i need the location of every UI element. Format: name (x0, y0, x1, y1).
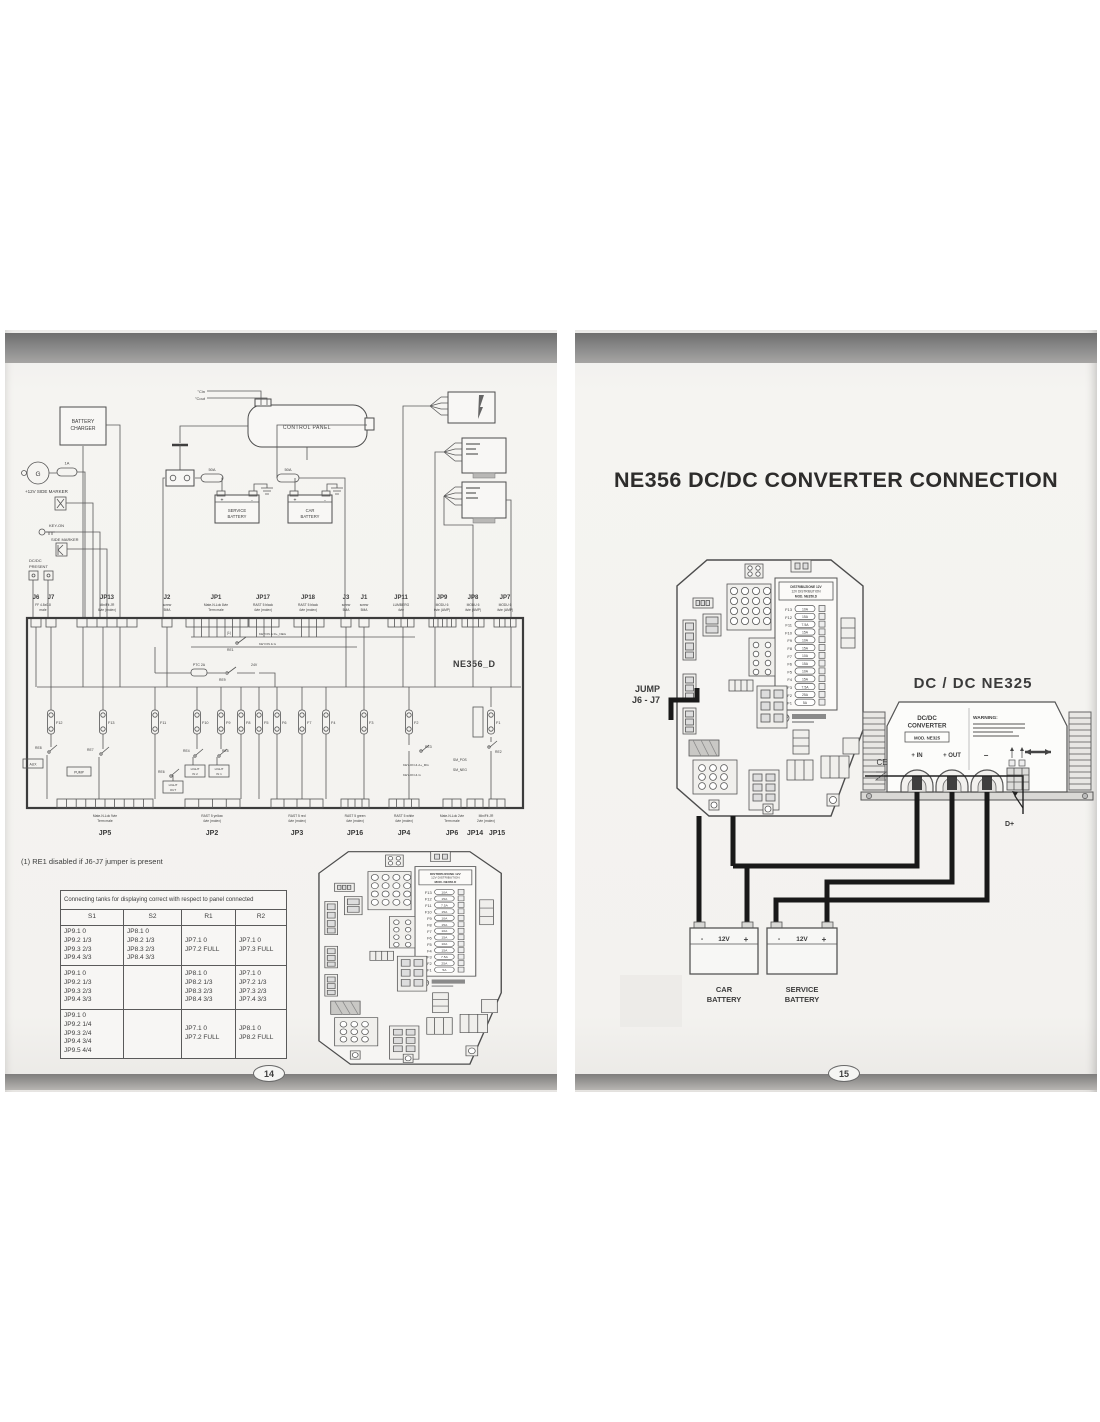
desc-jp13b: 6vie (molex) (98, 608, 116, 612)
sensor-module-a (448, 392, 495, 423)
service-battery-plus: + (822, 935, 827, 944)
cell-r3-s1: JP9.1 0 JP9.2 1/4 JP9.3 2/4 JP9.4 3/4 JP… (61, 1010, 124, 1059)
converter-name2: CONVERTER (908, 723, 947, 730)
light-in1-label: LIGHT (215, 767, 224, 771)
ptc-fuse (191, 669, 207, 676)
cell-r2-s1: JP9.1 0 JP9.2 1/3 JP9.3 2/3 JP9.4 3/3 (61, 966, 124, 1010)
re4-label: RE4 (183, 749, 190, 753)
re7-label: RE7 (87, 748, 94, 752)
desc-jp1: Mate-N-Lok 8vie (204, 603, 228, 607)
fuse-1a: 1A (57, 461, 77, 477)
service-battery-name: SERVICE (786, 985, 819, 994)
light-in2-label2: IN 2 (192, 772, 198, 776)
main-fuse (473, 707, 483, 737)
light-in2-label: LIGHT (191, 767, 200, 771)
fuse-50a-service: 50A (201, 467, 223, 482)
desc-jp13: MiniFit JR (100, 603, 115, 607)
desc-jp7: MODU 6 (499, 603, 512, 607)
jump-label2: J6 - J7 (632, 695, 660, 705)
desc-jp11b: 4vie (398, 608, 404, 612)
desc-jp3b: 4vie (molex) (288, 819, 306, 823)
car-battery-plus: + (294, 498, 297, 504)
fuse-f9: F9 (226, 721, 230, 725)
desc-jp14-15: MiniFit JR (479, 814, 494, 818)
page-14: °Cin °Cout CONTROL PANEL BATTERY CHARGER… (5, 330, 557, 1092)
connector-strips-bottom (57, 799, 505, 808)
desc-jp1b: Term male (208, 608, 224, 612)
dcdc-converter-unit: DC/DC CONVERTER MOD. NE325 WARNING: CE +… (861, 702, 1093, 800)
page-number-14-text: 14 (264, 1069, 274, 1079)
desc-jp6: Mate-N-Lok 2vie (440, 814, 464, 818)
fuse-f11: F11 (160, 721, 166, 725)
car-battery-name: CAR (716, 985, 733, 994)
sm-pos-label: SM_POS (453, 758, 468, 762)
car-battery-label2: BATTERY (301, 514, 320, 519)
ground-symbols (261, 488, 343, 494)
connector-jp6: JP6 (446, 830, 459, 837)
desc-jp9: MODU 6 (436, 603, 449, 607)
desc-jp8b: 4vie (AMP) (465, 608, 481, 612)
board-ne356d: NE356_D (1) RE1 KEYON & D+_NEG KEYON & G… (23, 618, 523, 808)
board-relays: RE8 AUX RE7 PUMP RE6 LIGHT OUT RE4 LIGHT (23, 741, 502, 793)
desc-jp4b: 4vie (molex) (395, 819, 413, 823)
wiring-diagram-ne356: °Cin °Cout CONTROL PANEL BATTERY CHARGER… (5, 385, 557, 865)
converter-name: DC/DC (917, 715, 937, 722)
desc-jp6b: Term male (444, 819, 460, 823)
v24-label: 24V (251, 663, 258, 667)
dplus-label: D+ (1005, 821, 1014, 828)
fuse-50a-car: 50A (277, 467, 299, 482)
ce-mark: CE (876, 758, 887, 767)
cell-r1-s2: JP8.1 0 JP8.2 1/3 JP8.3 2/3 JP8.4 3/3 (124, 926, 182, 966)
desc-j1: screw (360, 603, 369, 607)
col-r1: R1 (182, 910, 236, 926)
battery-switch (166, 445, 194, 486)
light-in1-label2: IN 1 (216, 772, 222, 776)
cell-r3-r2: JP8.1 0 JP8.2 FULL (236, 1010, 287, 1059)
pcb-layout-large (677, 560, 863, 816)
connector-jp7: JP7 (500, 595, 511, 601)
cell-r1-r2: JP7.1 0 JP7.3 FULL (236, 926, 287, 966)
cell-r2-s2 (124, 966, 182, 1010)
connector-strips-top (31, 618, 516, 627)
fuse-labels: F12 F13 F11 F10 F9 F8 F5 F6 F7 F4 F3 F2 … (56, 721, 500, 725)
connector-labels-bottom: JP5 JP2 JP3 JP16 JP4 JP6 JP14 JP15 (99, 830, 506, 837)
desc-j1b: 5MA (361, 608, 369, 612)
terminal-minus-label: − (984, 751, 989, 760)
desc-jp2: RAST 5 yellow (201, 814, 223, 818)
cell-r2-r1: JP8.1 0 JP8.2 1/3 JP8.3 2/3 JP8.4 3/3 (182, 966, 236, 1010)
keyon-g-label: KEYON & G (259, 642, 277, 646)
label-12v-side-marker: +12V SIDE MARKER (25, 489, 69, 494)
col-r2: R2 (236, 910, 287, 926)
fuse-f5: F5 (264, 721, 268, 725)
page-15: NE356 DC/DC CONVERTER CONNECTION JUMP J6… (575, 330, 1097, 1092)
desc-jp18b: 4vie (molex) (299, 608, 317, 612)
terminal-out-label: + OUT (943, 753, 961, 759)
cell-r1-s1: JP9.1 0 JP9.2 1/3 JP9.3 2/3 JP9.4 3/3 (61, 926, 124, 966)
connector-jp5: JP5 (99, 830, 112, 837)
page-number-15: 15 (828, 1065, 860, 1082)
car-battery-voltage: 12V (718, 936, 730, 943)
ptc-label: PTC 2A (193, 663, 206, 667)
connector-jp11: JP11 (394, 595, 408, 601)
relay-re9 (226, 667, 236, 674)
page-title: NE356 DC/DC CONVERTER CONNECTION (575, 468, 1097, 493)
connector-j2: J2 (164, 595, 171, 601)
desc-j3b: 5MA (343, 608, 351, 612)
fuse-f3: F3 (369, 721, 373, 725)
connector-jp16: JP16 (347, 830, 363, 837)
side-marker-icon (56, 543, 67, 556)
light-out-label2: OUT (170, 788, 177, 792)
keyon-g2-label: KEY-ON & G (403, 773, 421, 777)
fuse-f6: F6 (282, 721, 286, 725)
re9-label: RE9 (219, 678, 226, 682)
sensor-module-b (462, 438, 506, 478)
board-name: NE356_D (453, 659, 496, 669)
service-battery: + - SERVICE BATTERY (215, 491, 259, 523)
service-battery-label: SERVICE (228, 508, 247, 513)
light-out-label: LIGHT (169, 783, 178, 787)
desc-j2b: 5MA (164, 608, 172, 612)
label-side-marker: SIDE MARKER (51, 537, 79, 542)
connector-descs-top: FF 4.8x0.8male MiniFit JR6vie (molex) sc… (35, 603, 513, 612)
control-panel: CONTROL PANEL (248, 399, 374, 447)
service-battery-plus: + (221, 498, 224, 504)
jump-label: JUMP (635, 684, 660, 694)
fuse-f8: F8 (246, 721, 250, 725)
service-battery-15: - 12V + SERVICE BATTERY (767, 922, 837, 1004)
label-key-on: KEY-ON (49, 523, 64, 528)
page-number-15-text: 15 (839, 1069, 849, 1079)
desc-jp9b: 6vie (AMP) (434, 608, 450, 612)
fuse-f4: F4 (331, 721, 335, 725)
service-battery-voltage: 12V (796, 936, 808, 943)
fuse-f13: F13 (108, 721, 115, 725)
connector-j3: J3 (343, 595, 350, 601)
board-fuses: F12 F13 F11 F10 F9 F8 F5 F6 F7 F4 F3 F2 … (48, 707, 501, 737)
connector-jp3: JP3 (291, 830, 304, 837)
fuse-50a-car-label: 50A (284, 467, 291, 472)
fuse-symbols (48, 710, 495, 734)
desc-j3: screw (342, 603, 351, 607)
connector-jp4: JP4 (398, 830, 411, 837)
re1-note-ref: (1) (227, 631, 231, 635)
connector-j1: J1 (361, 595, 368, 601)
desc-j6j7b: male (39, 608, 46, 612)
dynamo-symbol: G (22, 462, 50, 484)
pump-label: PUMP (74, 771, 85, 775)
cell-r1-r1: JP7.1 0 JP7.2 FULL (182, 926, 236, 966)
cell-r3-r1: JP7.1 0 JP7.2 FULL (182, 1010, 236, 1059)
sm-neg-label: SM_NEG (453, 768, 467, 772)
fuse-f7: F7 (307, 721, 311, 725)
connector-j6: J6 (33, 595, 40, 601)
desc-jp4: RAST 5 white (394, 814, 414, 818)
fuse-f10: F10 (202, 721, 209, 725)
pcb-layout-small: DISTRIBUZIONE 12V 12V DISTRIBUTION MOD. … (317, 850, 507, 1068)
converter-model: MOD. NE325 (914, 735, 941, 740)
desc-jp17b: 4vie (molex) (254, 608, 272, 612)
re3-label: RE3 (425, 745, 432, 749)
connector-jp1: JP1 (211, 595, 222, 601)
re5-label: RE5 (222, 749, 229, 753)
page-number-14: 14 (253, 1065, 285, 1082)
table-title: Connecting tanks for displaying correct … (61, 891, 287, 910)
cell-r2-r2: JP7.1 0 JP7.2 1/3 JP7.3 2/3 JP7.4 3/3 (236, 966, 287, 1010)
fuse-1a-label: 1A (65, 461, 70, 466)
relay-re1 (236, 637, 246, 644)
keyon-dneg-label: KEYON & D+_NEG (259, 632, 287, 636)
scan-artifact (620, 975, 682, 1027)
warning-label: WARNING: (973, 715, 998, 721)
desc-jp7b: 4vie (AMP) (497, 608, 513, 612)
re1-label: RE1 (227, 648, 234, 652)
connector-jp8: JP8 (468, 595, 479, 601)
col-s1: S1 (61, 910, 124, 926)
scan-top-bar (5, 333, 557, 363)
aux-label: AUX (30, 763, 38, 767)
dynamo-label: G (35, 471, 40, 478)
control-panel-label: CONTROL PANEL (283, 425, 331, 431)
desc-jp16: RAST 5 green (345, 814, 366, 818)
connector-j7: J7 (48, 595, 55, 601)
scanned-manual-spread: °Cin °Cout CONTROL PANEL BATTERY CHARGER… (0, 0, 1100, 1422)
desc-j2: screw (163, 603, 172, 607)
dcdc-present-pads (29, 571, 53, 580)
connector-jp18: JP18 (301, 595, 316, 601)
footnote-re1: (1) RE1 disabled if J6-J7 jumper is pres… (21, 857, 163, 866)
re8-label: RE8 (35, 746, 42, 750)
label-tc-out: °Cout (195, 396, 206, 401)
desc-jp8: MODU 6 (467, 603, 480, 607)
car-battery-label: CAR (306, 508, 315, 513)
desc-jp5b: Term male (97, 819, 113, 823)
battery-charger-label2: CHARGER (70, 426, 95, 432)
label-dcdc-present2: PRESENT (29, 564, 48, 569)
connector-jp17: JP17 (256, 595, 271, 601)
desc-jp2b: 4vie (molex) (203, 819, 221, 823)
terminal-in-label: + IN (911, 753, 922, 759)
battery-charger: BATTERY CHARGER (60, 407, 106, 445)
re2-label: RE2 (495, 750, 502, 754)
connector-jp2: JP2 (206, 830, 219, 837)
fuse-f2: F2 (414, 721, 418, 725)
car-battery-15: - 12V + CAR BATTERY (690, 922, 758, 1004)
connector-jp14: JP14 (467, 830, 483, 837)
col-s2: S2 (124, 910, 182, 926)
label-dcdc-present: DC/DC (29, 558, 42, 563)
car-battery: + - CAR BATTERY (288, 491, 332, 523)
cell-r3-s2 (124, 1010, 182, 1059)
converter-heading: DC / DC NE325 (914, 675, 1033, 692)
keyon-amg-label: KEY-ON & A+_MG (403, 763, 429, 767)
connector-descs-bottom: Mate-N-Lok 9vieTerm male RAST 5 yellow4v… (93, 814, 495, 823)
desc-jp3: RAST 5 red (288, 814, 305, 818)
desc-jp11: LUMBERG (393, 603, 410, 607)
desc-jp17: RAST 5 black (253, 603, 273, 607)
desc-jp14-15b: 2vie (molex) (477, 819, 495, 823)
desc-jp18: RAST 5 black (298, 603, 318, 607)
service-battery-name2: BATTERY (785, 995, 820, 1004)
car-battery-name2: BATTERY (707, 995, 742, 1004)
battery-charger-label: BATTERY (72, 419, 95, 425)
desc-j6j7: FF 4.8x0.8 (35, 603, 51, 607)
service-battery-label2: BATTERY (228, 514, 247, 519)
desc-jp16b: 4vie (molex) (346, 819, 364, 823)
fuse-50a-service-label: 50A (208, 467, 215, 472)
sensor-module-c (462, 482, 506, 523)
car-battery-plus: + (744, 935, 749, 944)
connector-labels-top: J6 J7 JP13 J2 JP1 JP17 JP18 J3 J1 JP11 J… (33, 595, 511, 601)
connector-jp13: JP13 (100, 595, 115, 601)
tank-jumper-table: Connecting tanks for displaying correct … (60, 890, 287, 1059)
label-tc-in: °Cin (197, 389, 205, 394)
buzzer-icon (55, 497, 66, 510)
desc-jp5: Mate-N-Lok 9vie (93, 814, 117, 818)
connector-jp9: JP9 (437, 595, 448, 601)
connector-jp15: JP15 (489, 830, 505, 837)
scan-top-bar (575, 333, 1097, 363)
re6-label: RE6 (158, 770, 165, 774)
fuse-f1: F1 (496, 721, 500, 725)
fuse-f12: F12 (56, 721, 63, 725)
